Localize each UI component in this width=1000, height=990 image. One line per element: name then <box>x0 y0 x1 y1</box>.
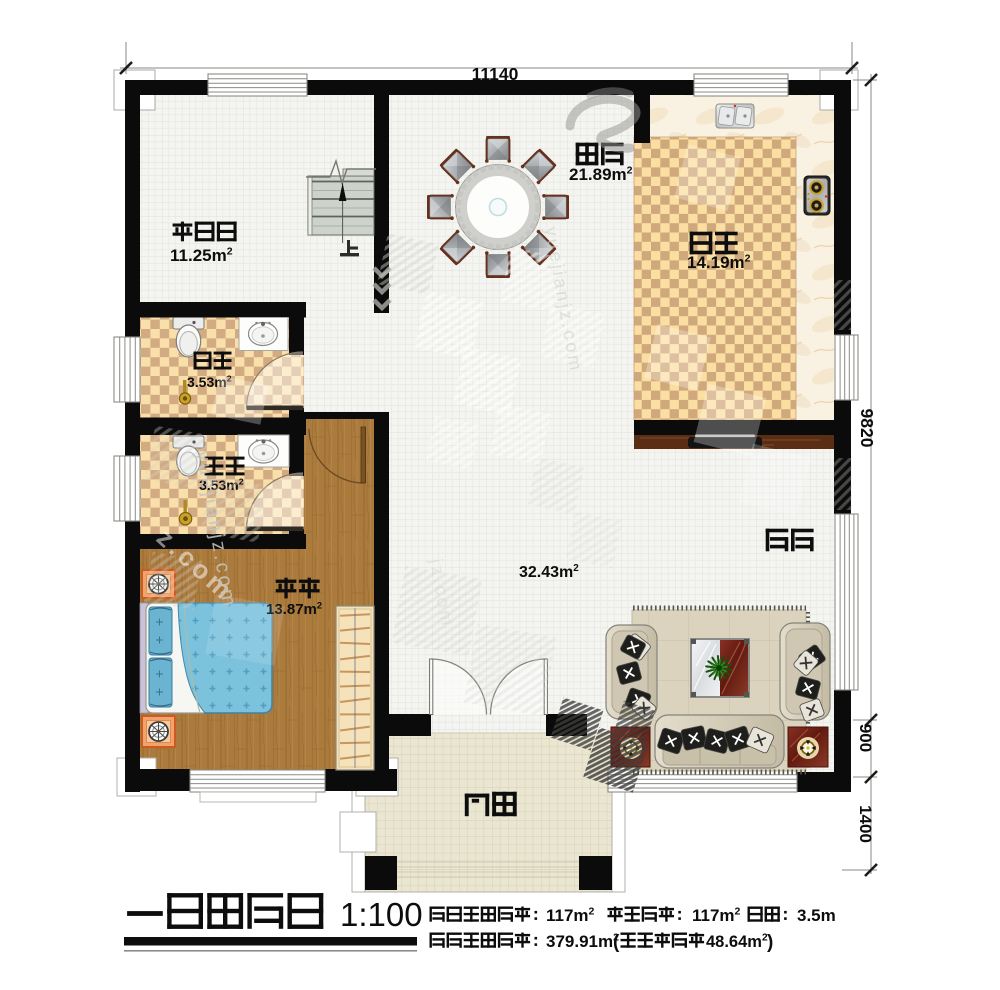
svg-text:11140: 11140 <box>472 64 519 84</box>
svg-text:14.19m2: 14.19m2 <box>687 253 751 273</box>
svg-text:3.5m: 3.5m <box>797 906 836 925</box>
svg-text:379.91m2: 379.91m2 <box>546 932 619 952</box>
svg-text:): ) <box>767 932 773 953</box>
svg-text:117m2: 117m2 <box>546 906 595 926</box>
svg-text:32.43m2: 32.43m2 <box>519 563 579 581</box>
svg-text:1:100: 1:100 <box>340 896 423 933</box>
svg-text:117m2: 117m2 <box>692 906 741 926</box>
svg-text:(: ( <box>613 932 620 953</box>
svg-text:9820: 9820 <box>857 409 877 448</box>
svg-text:11.25m2: 11.25m2 <box>170 246 233 266</box>
svg-text:1400: 1400 <box>856 805 875 843</box>
svg-text:48.64m2: 48.64m2 <box>706 933 768 951</box>
svg-text:900: 900 <box>856 724 875 752</box>
svg-text:21.89m2: 21.89m2 <box>569 165 633 185</box>
